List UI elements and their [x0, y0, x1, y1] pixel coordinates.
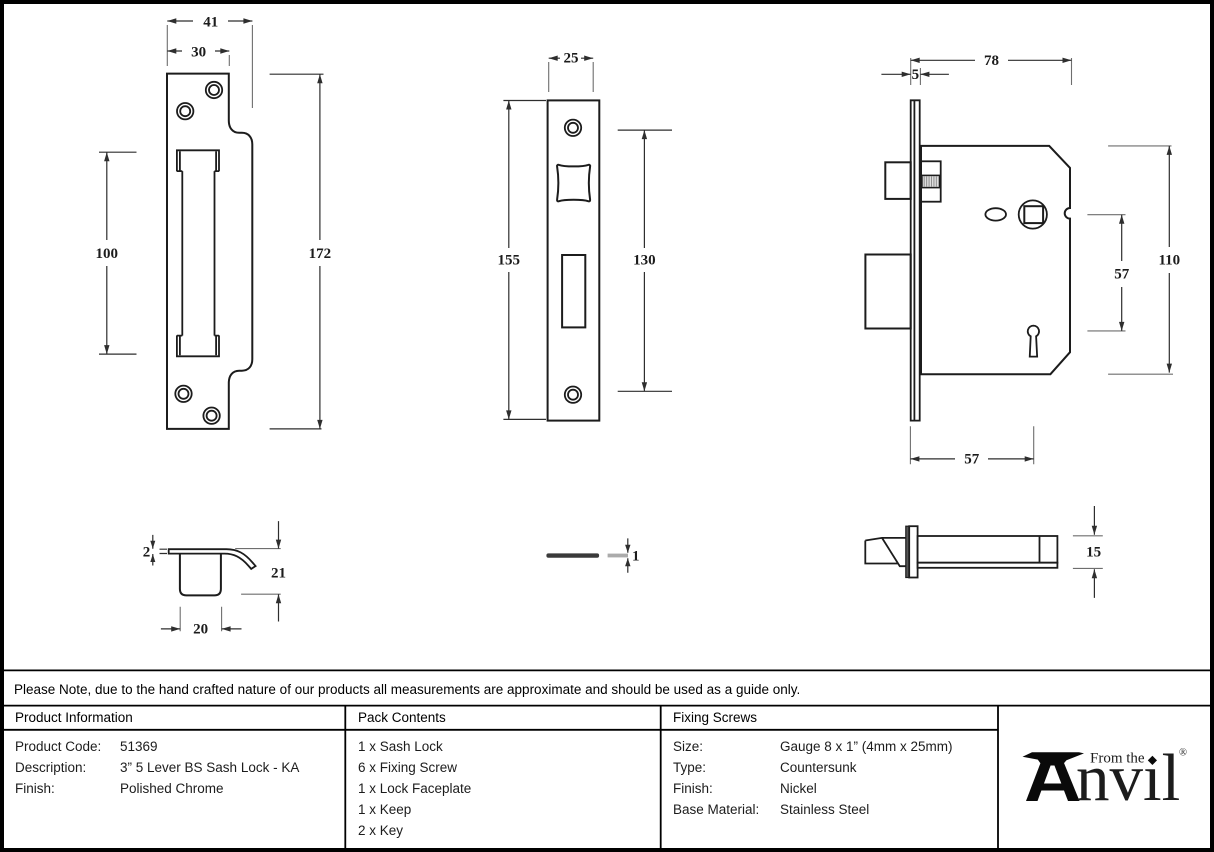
svg-text:Product Code:: Product Code:	[15, 739, 101, 754]
svg-text:30: 30	[191, 45, 206, 61]
svg-text:155: 155	[498, 253, 521, 269]
svg-text:20: 20	[193, 622, 208, 638]
svg-text:2 x Key: 2 x Key	[358, 823, 403, 838]
svg-text:Countersunk: Countersunk	[780, 760, 857, 775]
svg-text:1 x Lock Faceplate: 1 x Lock Faceplate	[358, 781, 471, 796]
svg-text:®: ®	[1179, 748, 1187, 759]
svg-text:Please Note, due to the hand c: Please Note, due to the hand crafted nat…	[14, 682, 800, 697]
svg-text:1: 1	[632, 548, 640, 564]
svg-text:100: 100	[96, 246, 119, 262]
svg-text:2: 2	[143, 545, 151, 561]
svg-text:Base Material:: Base Material:	[673, 802, 759, 817]
svg-text:1 x Sash Lock: 1 x Sash Lock	[358, 739, 443, 754]
svg-text:Pack Contents: Pack Contents	[358, 710, 446, 725]
svg-text:1 x Keep: 1 x Keep	[358, 802, 411, 817]
svg-text:Gauge 8 x 1” (4mm x 25mm): Gauge 8 x 1” (4mm x 25mm)	[780, 739, 953, 754]
svg-text:41: 41	[203, 15, 218, 31]
svg-text:51369: 51369	[120, 739, 158, 754]
svg-text:Finish:: Finish:	[673, 781, 713, 796]
svg-text:172: 172	[309, 246, 332, 262]
svg-text:78: 78	[984, 53, 999, 69]
svg-text:6 x Fixing Screw: 6 x Fixing Screw	[358, 760, 457, 775]
svg-text:5: 5	[912, 67, 920, 83]
svg-text:25: 25	[564, 51, 579, 67]
svg-text:110: 110	[1158, 253, 1180, 269]
svg-text:57: 57	[1114, 267, 1130, 283]
svg-text:Type:: Type:	[673, 760, 706, 775]
svg-text:Polished Chrome: Polished Chrome	[120, 781, 224, 796]
svg-text:Finish:: Finish:	[15, 781, 55, 796]
svg-text:Stainless Steel: Stainless Steel	[780, 802, 869, 817]
svg-text:21: 21	[271, 566, 286, 582]
svg-text:Size:: Size:	[673, 739, 703, 754]
svg-text:Product Information: Product Information	[15, 710, 133, 725]
svg-text:3” 5 Lever BS Sash Lock - KA: 3” 5 Lever BS Sash Lock - KA	[120, 760, 299, 775]
svg-text:15: 15	[1086, 545, 1101, 561]
svg-text:130: 130	[633, 253, 656, 269]
svg-text:Fixing Screws: Fixing Screws	[673, 710, 757, 725]
svg-text:Nickel: Nickel	[780, 781, 817, 796]
svg-text:57: 57	[964, 452, 980, 468]
svg-text:From the: From the	[1090, 751, 1145, 767]
svg-text:Description:: Description:	[15, 760, 86, 775]
